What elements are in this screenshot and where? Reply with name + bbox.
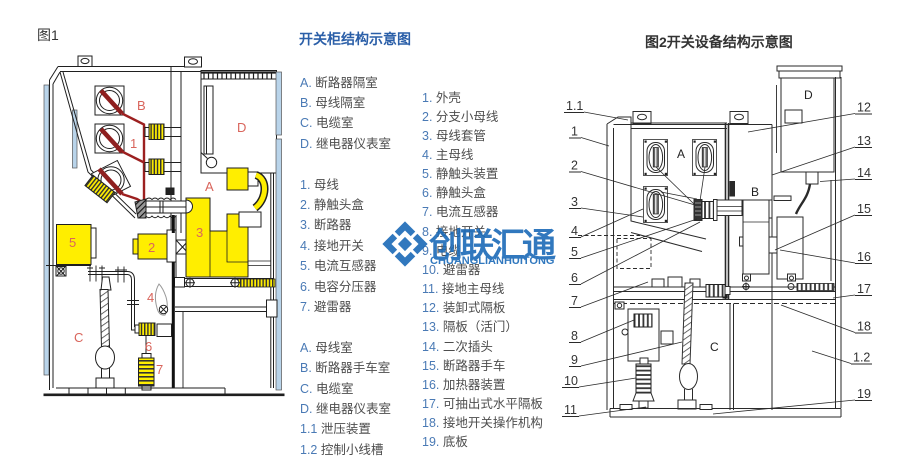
svg-text:8: 8 bbox=[571, 329, 578, 343]
svg-text:A: A bbox=[205, 179, 214, 194]
svg-text:10: 10 bbox=[564, 374, 578, 388]
svg-text:1: 1 bbox=[130, 136, 137, 151]
svg-text:1: 1 bbox=[571, 125, 578, 139]
svg-text:C: C bbox=[74, 330, 83, 345]
svg-text:6: 6 bbox=[571, 271, 578, 285]
svg-text:16: 16 bbox=[857, 250, 871, 264]
svg-text:1.2: 1.2 bbox=[853, 351, 870, 365]
svg-text:5: 5 bbox=[571, 245, 578, 259]
svg-text:A: A bbox=[677, 147, 685, 161]
svg-text:18: 18 bbox=[857, 320, 871, 334]
svg-text:3: 3 bbox=[571, 195, 578, 209]
svg-text:4: 4 bbox=[571, 224, 578, 238]
svg-text:7: 7 bbox=[156, 362, 163, 377]
svg-text:C: C bbox=[710, 340, 719, 354]
svg-text:7: 7 bbox=[571, 294, 578, 308]
svg-text:4: 4 bbox=[147, 290, 154, 305]
svg-text:9: 9 bbox=[571, 353, 578, 367]
svg-text:3: 3 bbox=[196, 225, 203, 240]
svg-text:14: 14 bbox=[857, 166, 871, 180]
svg-text:D: D bbox=[237, 120, 246, 135]
svg-text:2: 2 bbox=[148, 240, 155, 255]
svg-text:17: 17 bbox=[857, 282, 871, 296]
svg-text:B: B bbox=[751, 185, 759, 199]
svg-text:19: 19 bbox=[857, 387, 871, 401]
svg-text:2: 2 bbox=[571, 159, 578, 173]
svg-text:11: 11 bbox=[564, 403, 577, 417]
svg-text:B: B bbox=[137, 98, 146, 113]
svg-text:1.1: 1.1 bbox=[566, 99, 583, 113]
svg-text:6: 6 bbox=[145, 339, 152, 354]
svg-text:13: 13 bbox=[857, 134, 871, 148]
svg-text:15: 15 bbox=[857, 202, 871, 216]
svg-text:D: D bbox=[804, 88, 813, 102]
svg-text:5: 5 bbox=[69, 235, 76, 250]
svg-text:12: 12 bbox=[857, 101, 871, 115]
